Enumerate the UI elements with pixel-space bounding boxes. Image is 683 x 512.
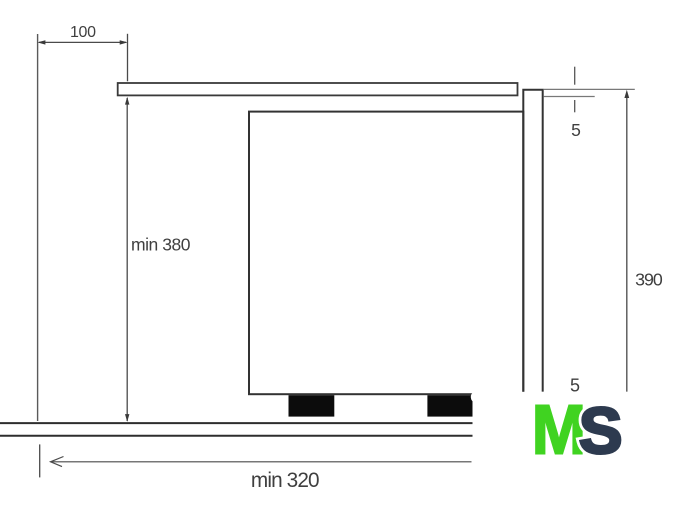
svg-text:min 380: min 380 [131,235,191,255]
svg-text:S: S [579,394,623,467]
svg-text:390: 390 [635,270,663,290]
svg-text:min 320: min 320 [251,469,320,492]
svg-text:100: 100 [70,24,96,41]
svg-text:5: 5 [571,120,581,140]
